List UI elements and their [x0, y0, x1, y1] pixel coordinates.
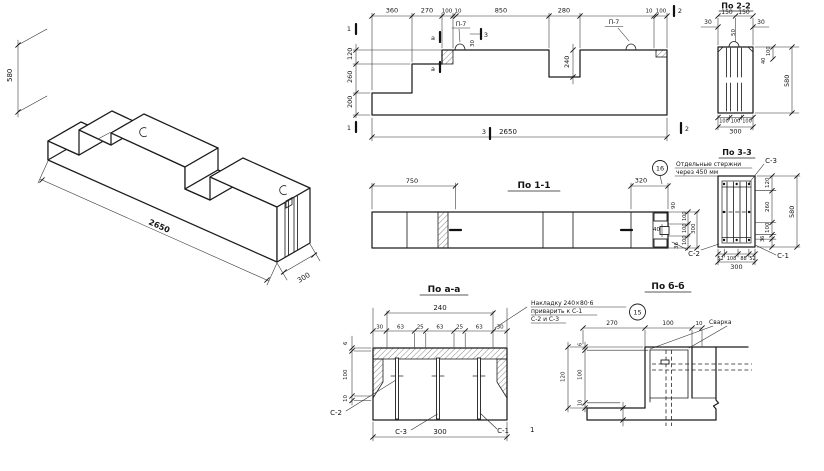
- label-c1: С-1: [497, 427, 509, 435]
- label-c1: С-1: [777, 252, 789, 260]
- section-mark-1-bottom: 1: [347, 124, 351, 132]
- dim-10: 10: [578, 400, 584, 406]
- elevation-outline: [372, 50, 667, 115]
- section-3-3-title: По 3-3: [722, 148, 751, 157]
- dim-25: 25: [417, 325, 424, 331]
- loop-label-right: П-7: [609, 19, 620, 26]
- dim-30-right: 30: [757, 19, 765, 26]
- section-3-3-view: По 3-3 Отдельные стержни через 450 мм С-…: [672, 148, 800, 271]
- dim-10: 10: [343, 395, 349, 402]
- section-2-2-bottom-dims: 100 100 100 300: [715, 115, 755, 136]
- corner-mark-1: 1: [530, 426, 534, 434]
- iso-width-dim: 300: [296, 271, 312, 285]
- section-b-b-top-dims: 270 100 10: [580, 320, 704, 346]
- section-3-3-bottom-dims: 52 108 88 52 300: [715, 249, 757, 271]
- section-b-b-title: По б-б: [651, 281, 684, 292]
- drawing-canvas: 580 2650 300 360 270 100 10 850 280 10: [0, 0, 824, 471]
- note-line1: Отдельные стержни: [676, 161, 741, 168]
- dim-52: 52: [749, 256, 755, 262]
- dim-300: 300: [730, 263, 742, 271]
- dim-240: 240: [563, 56, 571, 68]
- dim-150: 150: [738, 9, 750, 16]
- section-1-1-view: По 1-1 750 320 16 90 40: [369, 161, 699, 251]
- dim-100: 100: [656, 9, 667, 15]
- loop-label-left: П-7: [456, 21, 467, 28]
- dim-580: 580: [788, 206, 796, 218]
- dim-40: 40: [653, 227, 660, 233]
- elevation-view: 360 270 100 10 850 280 10 100 120 260 20…: [346, 6, 689, 141]
- dim-63: 63: [476, 325, 483, 331]
- dim-30-left: 30: [704, 19, 712, 26]
- dim-120: 120: [561, 371, 567, 382]
- dim-270: 270: [606, 320, 618, 327]
- section-a-a-top-dims: 240 30 63 25 63 25 63 30: [370, 304, 509, 347]
- dim-100: 100: [662, 320, 674, 327]
- section-a-a-left-dims: 6 100 10: [343, 336, 371, 405]
- dim-260: 260: [346, 71, 354, 83]
- label-c3: С-3: [395, 428, 407, 436]
- dim-300: 300: [433, 428, 446, 436]
- section-1-1-title: По 1-1: [517, 181, 550, 191]
- embedded-plate-left: [442, 50, 453, 64]
- dim-580: 580: [783, 75, 791, 87]
- dim-2650: 2650: [499, 128, 517, 136]
- dim-90: 90: [671, 202, 677, 209]
- dim-40: 40: [761, 58, 767, 64]
- dim-120: 120: [765, 177, 771, 188]
- dim-280: 280: [558, 7, 570, 15]
- dim-100: 100: [682, 223, 688, 233]
- dim-100: 100: [578, 369, 584, 380]
- section-a-a-title: По а-а: [428, 285, 461, 295]
- label-c2: С-2: [330, 409, 342, 417]
- label-c2: С-2: [688, 250, 700, 258]
- dim-320-group: 320: [628, 177, 670, 210]
- section-3-3-right-dims: 120 260 100 36 580: [755, 173, 800, 249]
- loop-callouts: П-7 П-7: [452, 19, 629, 42]
- section-mark-3-bottom: 3: [482, 128, 486, 136]
- note-line2: через 450 мм: [676, 169, 718, 176]
- elevation-bottom-dim: 2650 3: [369, 118, 669, 141]
- embedded-plate-right: [656, 50, 667, 57]
- anchor-plate: [661, 360, 669, 364]
- dim-100: 100: [343, 369, 349, 380]
- dim-100: 100: [682, 211, 688, 221]
- dim-6: 6: [343, 341, 349, 345]
- section-mark-a-bottom: а: [431, 65, 435, 73]
- dim-240: 240: [433, 304, 446, 312]
- section-mark-a-top: а: [431, 34, 435, 42]
- dim-100: 100: [682, 235, 688, 245]
- dim-25: 25: [456, 325, 463, 331]
- section-a-a-view: По а-а 240 30 63 25 63 25 63 30 6 100 1: [330, 285, 527, 441]
- section-mark-1-top: 1: [347, 25, 351, 33]
- dim-50: 50: [731, 29, 737, 36]
- dim-10: 10: [455, 9, 462, 15]
- dim-63: 63: [436, 325, 443, 331]
- dim-260: 260: [765, 201, 771, 212]
- dim-10: 10: [646, 9, 653, 15]
- embedded-plate: [438, 212, 448, 248]
- isometric-view: 580 2650 300: [6, 29, 320, 285]
- callout-16-number: 16: [656, 165, 664, 173]
- dim-108: 108: [727, 256, 737, 262]
- dim-850: 850: [495, 7, 507, 15]
- dim-30: 30: [497, 325, 504, 331]
- section-b-b-left-dims: 120 6 100 10: [561, 342, 649, 412]
- dim-100: 100: [442, 9, 453, 15]
- dim-360: 360: [386, 7, 398, 15]
- dim-200: 200: [346, 96, 354, 108]
- lifting-loop-icon: [455, 44, 465, 50]
- dim-88: 88: [740, 256, 746, 262]
- note-line3: С-2 и С-3: [531, 316, 559, 323]
- callout-15: 15: [630, 304, 646, 320]
- dim-30-loop: 30: [470, 40, 476, 47]
- section-mark-3-top: 3: [484, 31, 488, 39]
- weld-label: Сварка: [709, 319, 732, 326]
- dim-120: 120: [346, 48, 354, 60]
- dim-750-group: 750: [369, 177, 458, 209]
- dim-63: 63: [397, 325, 404, 331]
- dim-100: 100: [719, 119, 729, 125]
- dim-100: 100: [742, 119, 752, 125]
- dim-30: 30: [376, 325, 383, 331]
- section-b-b-view: По б-б Накладку 240×80·6 приварить к С-1…: [530, 281, 752, 434]
- dim-100: 100: [765, 222, 771, 233]
- callout-15-number: 15: [633, 309, 641, 317]
- dim-320: 320: [635, 177, 647, 185]
- dim-300: 300: [691, 223, 697, 234]
- technical-drawing-sheet: 580 2650 300 360 270 100 10 850 280 10: [0, 0, 824, 471]
- iso-height-dim: 580: [6, 69, 14, 82]
- dim-100: 100: [731, 119, 741, 125]
- dim-36: 36: [760, 236, 766, 242]
- section-2-2-right-dims: 100 40 580: [755, 44, 799, 115]
- dim-10: 10: [696, 321, 703, 327]
- section-a-a-bottom-dim: 300: [370, 422, 509, 441]
- dim-750: 750: [406, 177, 418, 185]
- note-line1: Накладку 240×80·6: [531, 300, 594, 307]
- section-mark-2-top: 2: [678, 7, 682, 15]
- section-mark-2-bottom: 2: [685, 125, 689, 133]
- dim-150: 150: [721, 9, 733, 16]
- dim-270: 270: [421, 7, 433, 15]
- section-2-2-view: По 2-2 150 150 30 30 50 100 40 580 100: [701, 2, 799, 136]
- dim-6: 6: [578, 343, 584, 346]
- note-line2: приварить к С-1: [531, 308, 582, 315]
- dim-300: 300: [729, 128, 741, 136]
- callout-16: 16: [653, 161, 668, 185]
- block-body: [48, 111, 310, 262]
- section-b-b-body: [587, 347, 752, 426]
- dim-100: 100: [766, 46, 772, 56]
- loop-head: [729, 42, 739, 47]
- lifting-loop-icon: [626, 44, 636, 50]
- section-2-2-outline: [718, 47, 753, 113]
- label-c3: С-3: [765, 157, 777, 165]
